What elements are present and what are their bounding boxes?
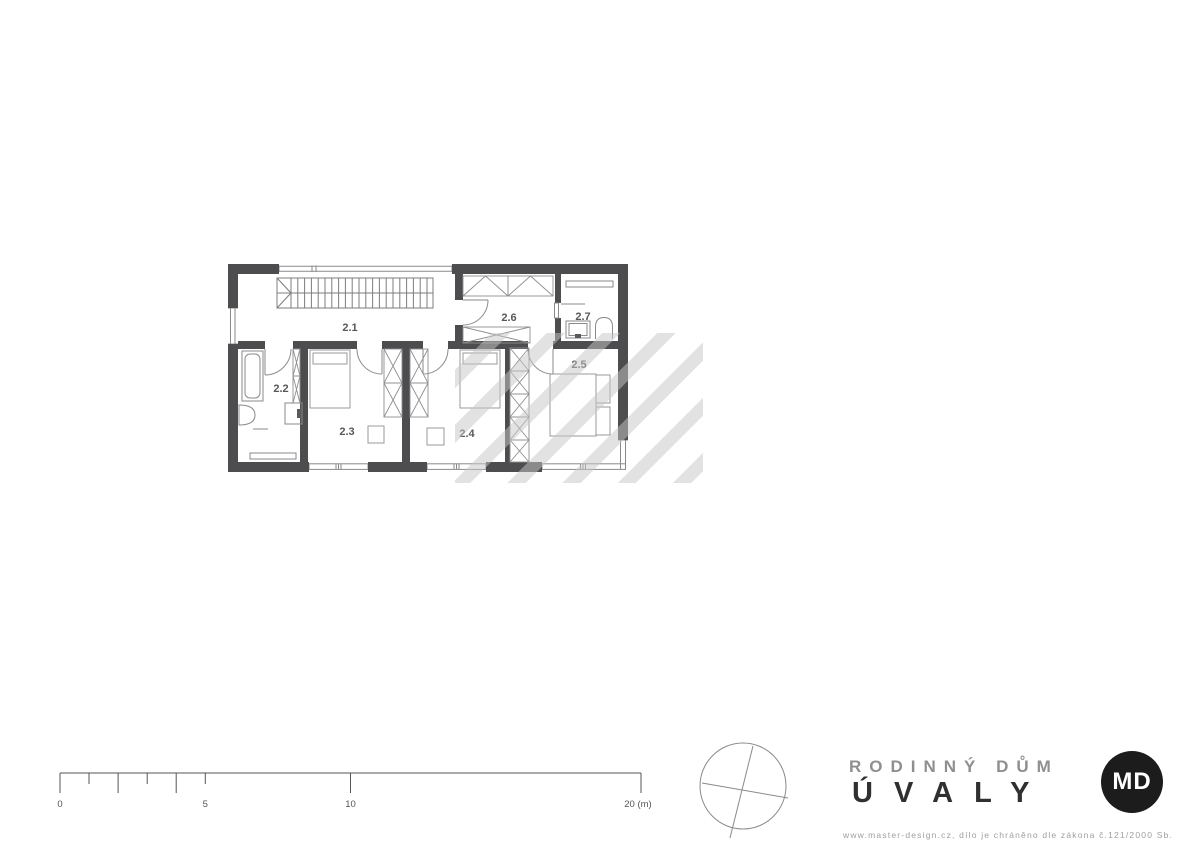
bathroom-fixtures-22 — [239, 351, 302, 459]
project-title: RODINNÝ DŮM — [849, 757, 1095, 777]
room-label-2-3: 2.3 — [339, 426, 354, 438]
compass-icon — [698, 740, 794, 840]
project-location: ÚVALY — [852, 777, 1098, 810]
copyright-note: www.master-design.cz, dílo je chráněno d… — [843, 830, 1173, 840]
staircase — [277, 278, 433, 308]
room-label-2-1: 2.1 — [342, 322, 357, 334]
scale-label-5: 5 — [203, 799, 208, 810]
floor-plan: 2.1 2.2 2.3 2.4 2.5 2.6 2.7 — [228, 264, 628, 472]
scale-bar: 0 5 10 20 (m) — [55, 765, 655, 813]
room-labels: 2.1 2.2 2.3 2.4 2.5 2.6 2.7 — [273, 311, 590, 440]
room-label-2-6: 2.6 — [501, 312, 516, 324]
md-logo-text: MD — [1112, 768, 1151, 796]
bathroom-fixtures-27 — [561, 281, 613, 339]
scale-label-20: 20 (m) — [624, 799, 651, 810]
scale-label-10: 10 — [345, 799, 356, 810]
room-label-2-5: 2.5 — [571, 359, 586, 371]
md-logo: MD — [1101, 751, 1163, 813]
room-label-2-7: 2.7 — [575, 311, 590, 323]
page: 2.1 2.2 2.3 2.4 2.5 2.6 2.7 0 5 10 20 (m… — [0, 0, 1200, 848]
room-label-2-4: 2.4 — [459, 428, 475, 440]
scale-label-0: 0 — [57, 799, 62, 810]
room-label-2-2: 2.2 — [273, 383, 288, 395]
